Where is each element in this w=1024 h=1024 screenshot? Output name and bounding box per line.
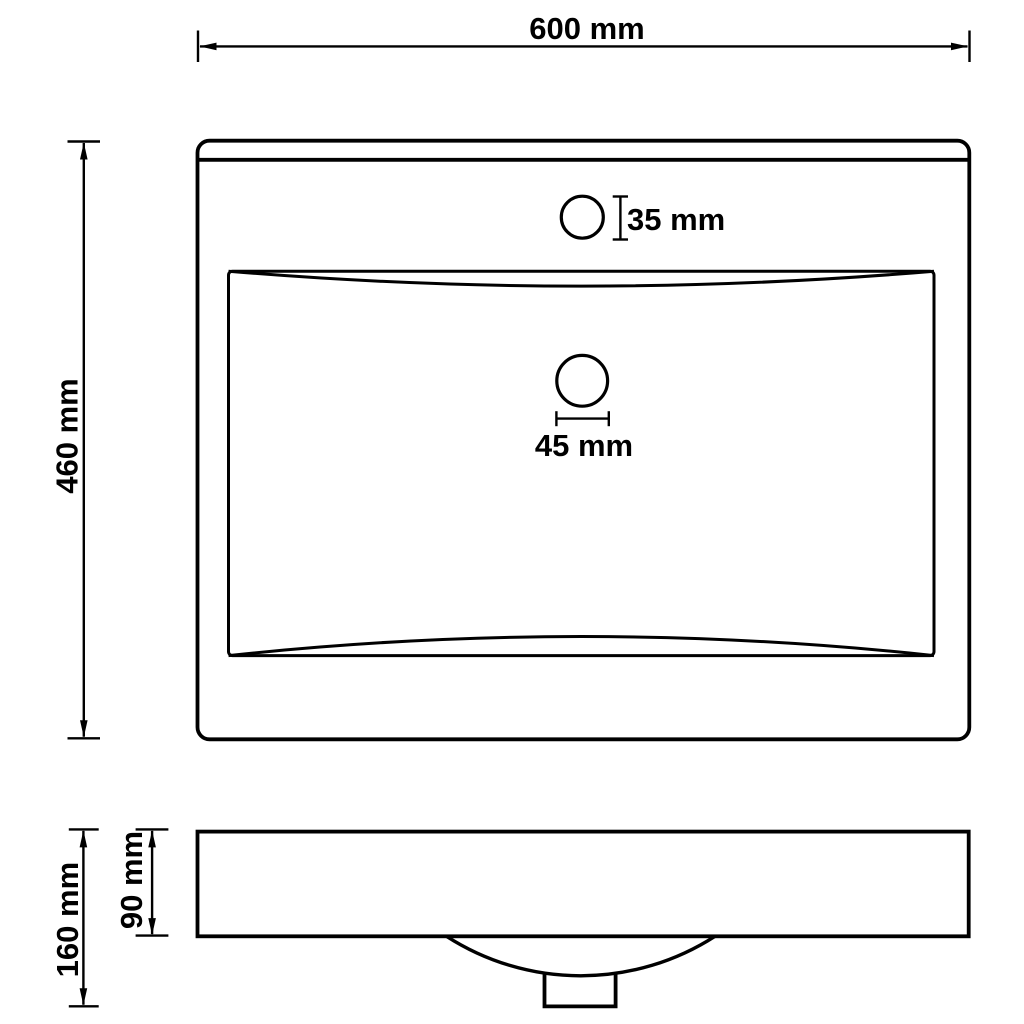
svg-text:90 mm: 90 mm xyxy=(114,831,149,929)
svg-text:45 mm: 45 mm xyxy=(535,428,633,463)
svg-text:460 mm: 460 mm xyxy=(50,378,85,493)
svg-text:160 mm: 160 mm xyxy=(50,862,85,977)
svg-text:600 mm: 600 mm xyxy=(529,11,644,46)
svg-text:35 mm: 35 mm xyxy=(627,202,725,237)
